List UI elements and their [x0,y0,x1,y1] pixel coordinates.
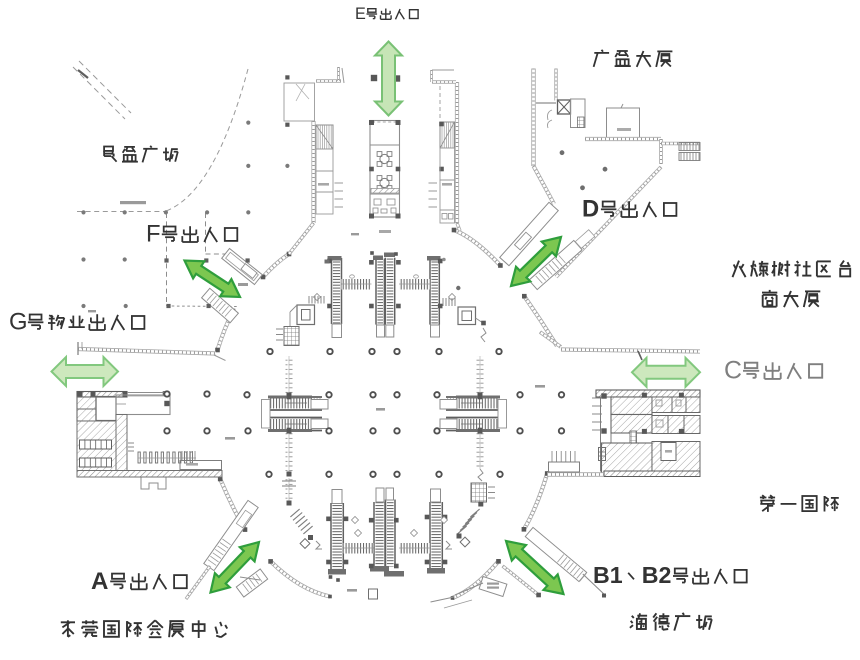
svg-text:C: C [724,357,742,385]
svg-text:F: F [146,221,161,248]
svg-text:D: D [582,196,599,223]
svg-text:A: A [91,568,108,595]
svg-text:B2: B2 [642,562,672,588]
svg-text:E: E [355,5,366,23]
svg-text:G: G [9,309,28,336]
svg-text:B1: B1 [593,562,623,588]
